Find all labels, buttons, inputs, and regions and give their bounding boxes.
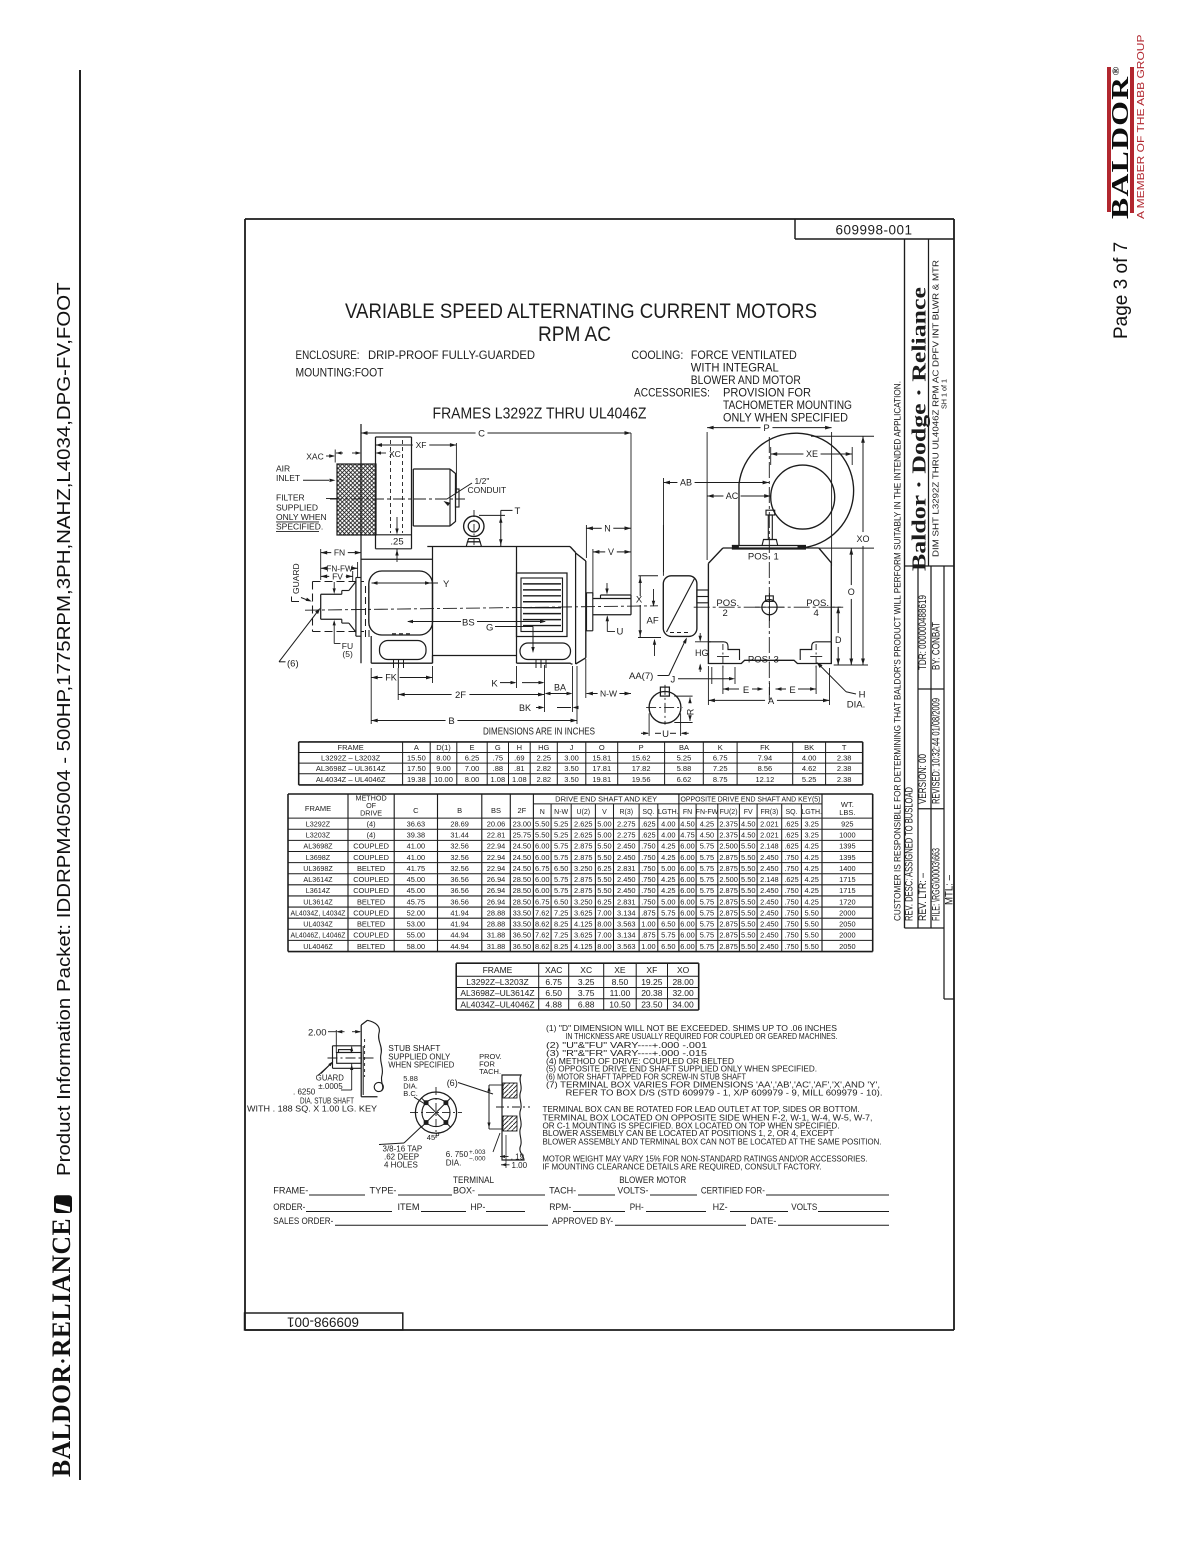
svg-text:2050: 2050 bbox=[839, 920, 855, 929]
svg-text:REV. DESC: ASSIGNED TO BUSLOA: REV. DESC: ASSIGNED TO BUSLOAD bbox=[904, 787, 916, 921]
svg-text:1000: 1000 bbox=[839, 831, 855, 840]
svg-text:2.875: 2.875 bbox=[719, 853, 738, 862]
svg-text:5.50: 5.50 bbox=[741, 875, 755, 884]
svg-text:.750: .750 bbox=[784, 864, 798, 873]
svg-text:J: J bbox=[671, 675, 676, 686]
svg-text:L3698Z: L3698Z bbox=[306, 853, 331, 862]
svg-text:1715: 1715 bbox=[839, 886, 855, 895]
svg-text:6.00: 6.00 bbox=[535, 875, 549, 884]
svg-text:28.50: 28.50 bbox=[513, 886, 532, 895]
svg-text:FORCE VENTILATED: FORCE VENTILATED bbox=[691, 350, 797, 362]
svg-text:POS.: POS. bbox=[748, 654, 771, 665]
svg-text:COUPLED: COUPLED bbox=[353, 908, 389, 917]
svg-text:8.56: 8.56 bbox=[758, 764, 773, 773]
svg-text:VARIABLE SPEED ALTERNATING CUR: VARIABLE SPEED ALTERNATING CURRENT MOTOR… bbox=[345, 300, 817, 323]
svg-text:5.50: 5.50 bbox=[741, 942, 755, 951]
svg-text:.750: .750 bbox=[641, 853, 655, 862]
svg-text:19.38: 19.38 bbox=[407, 775, 426, 784]
svg-text:3.563: 3.563 bbox=[617, 942, 636, 951]
svg-text:.750: .750 bbox=[784, 931, 798, 940]
svg-text:6.50: 6.50 bbox=[661, 920, 675, 929]
svg-text:28.50: 28.50 bbox=[513, 875, 532, 884]
svg-text:31.88: 31.88 bbox=[487, 942, 506, 951]
svg-text:6.50: 6.50 bbox=[554, 897, 568, 906]
svg-text:4.25: 4.25 bbox=[805, 864, 819, 873]
svg-text:1: 1 bbox=[774, 552, 779, 563]
svg-text:4.00: 4.00 bbox=[661, 819, 675, 828]
svg-text:DRIVE: DRIVE bbox=[360, 809, 382, 818]
svg-text:.750: .750 bbox=[784, 908, 798, 917]
svg-text:5.75: 5.75 bbox=[700, 886, 714, 895]
svg-text:.750: .750 bbox=[641, 886, 655, 895]
svg-text:5.50: 5.50 bbox=[597, 853, 611, 862]
svg-text:2.450: 2.450 bbox=[760, 853, 779, 862]
svg-text:L3292Z: L3292Z bbox=[306, 819, 331, 828]
svg-text:4.25: 4.25 bbox=[805, 897, 819, 906]
svg-text:ENCLOSURE:: ENCLOSURE: bbox=[296, 350, 360, 362]
svg-text:COOLING:: COOLING: bbox=[631, 350, 683, 362]
svg-text:2.82: 2.82 bbox=[536, 764, 551, 773]
svg-text:8.00: 8.00 bbox=[465, 775, 480, 784]
svg-text:.750: .750 bbox=[641, 875, 655, 884]
svg-text:31.88: 31.88 bbox=[487, 931, 506, 940]
svg-text:.625: .625 bbox=[784, 842, 798, 851]
svg-text:B: B bbox=[448, 716, 454, 727]
svg-text:E: E bbox=[789, 685, 795, 696]
svg-text:26.94: 26.94 bbox=[487, 886, 506, 895]
svg-text:HP-: HP- bbox=[470, 1202, 485, 1212]
svg-text:.875: .875 bbox=[641, 931, 655, 940]
svg-text:8.50: 8.50 bbox=[612, 977, 629, 987]
svg-text:BK: BK bbox=[519, 703, 531, 713]
svg-text:FRAME-: FRAME- bbox=[273, 1186, 308, 1196]
svg-text:3.625: 3.625 bbox=[574, 931, 593, 940]
svg-text:U: U bbox=[617, 627, 624, 638]
svg-text:3.250: 3.250 bbox=[574, 864, 593, 873]
svg-text:AL4034Z, L4034Z: AL4034Z, L4034Z bbox=[291, 908, 347, 917]
svg-text:31.44: 31.44 bbox=[450, 831, 469, 840]
svg-text:1.08: 1.08 bbox=[491, 775, 506, 784]
svg-text:XF: XF bbox=[646, 965, 657, 975]
svg-text:6.62: 6.62 bbox=[677, 775, 692, 784]
svg-text:(4): (4) bbox=[367, 831, 376, 840]
svg-text:4.50: 4.50 bbox=[680, 819, 694, 828]
svg-text:.750: .750 bbox=[641, 842, 655, 851]
svg-text:1395: 1395 bbox=[839, 842, 855, 851]
svg-text:2.831: 2.831 bbox=[617, 864, 636, 873]
svg-text:REFER TO BOX D/S (STD 609979 -: REFER TO BOX D/S (STD 609979 - 1, X/P 60… bbox=[566, 1088, 883, 1097]
svg-text:1.08: 1.08 bbox=[512, 775, 527, 784]
svg-text:2.625: 2.625 bbox=[574, 831, 593, 840]
svg-text:28.50: 28.50 bbox=[513, 897, 532, 906]
svg-text:SPECIFIED.: SPECIFIED. bbox=[276, 522, 323, 532]
svg-text:SQ.: SQ. bbox=[642, 809, 654, 816]
svg-text:4.50: 4.50 bbox=[700, 831, 714, 840]
svg-text:6.25: 6.25 bbox=[597, 864, 611, 873]
svg-text:2: 2 bbox=[723, 608, 728, 619]
svg-text:55.00: 55.00 bbox=[407, 931, 426, 940]
svg-text:10.00: 10.00 bbox=[434, 775, 453, 784]
svg-text:3.134: 3.134 bbox=[617, 908, 636, 917]
svg-text:COUPLED: COUPLED bbox=[353, 875, 389, 884]
svg-text:WHEN SPECIFIED: WHEN SPECIFIED bbox=[388, 1061, 454, 1070]
svg-text:2.875: 2.875 bbox=[719, 897, 738, 906]
svg-text:.625: .625 bbox=[784, 831, 798, 840]
svg-text:3.134: 3.134 bbox=[617, 931, 636, 940]
svg-text:AB: AB bbox=[680, 478, 692, 488]
svg-text:.750: .750 bbox=[784, 920, 798, 929]
svg-text:609998-001: 609998-001 bbox=[287, 1315, 359, 1330]
svg-text:41.00: 41.00 bbox=[407, 853, 426, 862]
svg-text:25.75: 25.75 bbox=[513, 831, 532, 840]
svg-text:V: V bbox=[602, 809, 607, 816]
svg-text:5.75: 5.75 bbox=[700, 920, 714, 929]
svg-text:33.50: 33.50 bbox=[513, 920, 532, 929]
svg-text:L3203Z: L3203Z bbox=[306, 831, 331, 840]
svg-text:3.75: 3.75 bbox=[578, 988, 595, 998]
svg-text:28.88: 28.88 bbox=[487, 920, 506, 929]
svg-text:4.25: 4.25 bbox=[805, 842, 819, 851]
svg-text:FRAME: FRAME bbox=[338, 743, 364, 752]
svg-text:7.25: 7.25 bbox=[713, 764, 728, 773]
svg-text:2.450: 2.450 bbox=[760, 920, 779, 929]
svg-text:6.25: 6.25 bbox=[597, 897, 611, 906]
svg-text:BS: BS bbox=[491, 806, 501, 815]
svg-text:TACH-: TACH- bbox=[549, 1186, 576, 1196]
svg-text:FN: FN bbox=[334, 548, 345, 558]
svg-text:1715: 1715 bbox=[839, 875, 855, 884]
svg-text:2.625: 2.625 bbox=[574, 819, 593, 828]
svg-text:U: U bbox=[662, 729, 669, 740]
svg-text:1.00: 1.00 bbox=[512, 1161, 528, 1170]
svg-text:5.50: 5.50 bbox=[741, 842, 755, 851]
svg-text:FV: FV bbox=[332, 571, 343, 581]
svg-text:4.50: 4.50 bbox=[741, 819, 755, 828]
svg-text:2.875: 2.875 bbox=[719, 942, 738, 951]
svg-text:4.00: 4.00 bbox=[661, 831, 675, 840]
svg-text:32.56: 32.56 bbox=[450, 853, 469, 862]
svg-text:22.81: 22.81 bbox=[487, 831, 506, 840]
svg-text:36.56: 36.56 bbox=[450, 886, 469, 895]
svg-text:BLOWER ASSEMBLY AND TERMINAL B: BLOWER ASSEMBLY AND TERMINAL BOX CAN NOT… bbox=[543, 1137, 882, 1146]
svg-text:−.000: −.000 bbox=[469, 1156, 486, 1163]
svg-text:XAC: XAC bbox=[545, 965, 562, 975]
svg-text:.69: .69 bbox=[514, 754, 524, 763]
svg-text:2.875: 2.875 bbox=[574, 886, 593, 895]
svg-text:17.81: 17.81 bbox=[592, 764, 611, 773]
svg-text:L3614Z: L3614Z bbox=[306, 886, 331, 895]
svg-text:6.50: 6.50 bbox=[661, 942, 675, 951]
svg-text:BLOWER AND MOTOR: BLOWER AND MOTOR bbox=[691, 375, 801, 387]
svg-text:AL3698Z – UL3614Z: AL3698Z – UL3614Z bbox=[316, 764, 386, 773]
svg-text:5.75: 5.75 bbox=[554, 853, 568, 862]
svg-text:AL3614Z: AL3614Z bbox=[303, 875, 333, 884]
svg-text:BS: BS bbox=[462, 618, 475, 629]
svg-text:XAC: XAC bbox=[306, 452, 323, 462]
svg-text:58.00: 58.00 bbox=[407, 942, 426, 951]
svg-text:BELTED: BELTED bbox=[357, 864, 385, 873]
svg-text:15.62: 15.62 bbox=[632, 754, 651, 763]
svg-text:8.00: 8.00 bbox=[597, 942, 611, 951]
svg-text:5.75: 5.75 bbox=[700, 864, 714, 873]
svg-text:2.275: 2.275 bbox=[617, 819, 636, 828]
svg-text:PROVISION FOR: PROVISION FOR bbox=[723, 388, 811, 400]
svg-text:8.00: 8.00 bbox=[597, 920, 611, 929]
svg-text:11.00: 11.00 bbox=[610, 988, 631, 998]
svg-text:5.00: 5.00 bbox=[661, 897, 675, 906]
svg-text:6.00: 6.00 bbox=[680, 886, 694, 895]
svg-text:MOUNTING:FOOT: MOUNTING:FOOT bbox=[296, 368, 384, 380]
svg-text:.88: .88 bbox=[493, 764, 503, 773]
svg-text:XE: XE bbox=[806, 449, 818, 459]
svg-text:OPPOSITE DRIVE END SHAFT AND K: OPPOSITE DRIVE END SHAFT AND KEY(5) bbox=[680, 795, 820, 804]
svg-text:12.12: 12.12 bbox=[756, 775, 775, 784]
svg-text:.750: .750 bbox=[784, 897, 798, 906]
svg-text:5.50: 5.50 bbox=[741, 853, 755, 862]
svg-text:7.00: 7.00 bbox=[597, 931, 611, 940]
svg-text:22.94: 22.94 bbox=[487, 853, 506, 862]
svg-text:FRAME: FRAME bbox=[305, 804, 331, 813]
svg-text:(6): (6) bbox=[447, 1078, 458, 1088]
svg-text:2.875: 2.875 bbox=[719, 931, 738, 940]
svg-text:7.25: 7.25 bbox=[554, 931, 568, 940]
svg-text:5.75: 5.75 bbox=[661, 908, 675, 917]
svg-text:36.50: 36.50 bbox=[513, 931, 532, 940]
svg-text:24.50: 24.50 bbox=[513, 842, 532, 851]
svg-text:H: H bbox=[517, 743, 522, 752]
svg-text:SH 1 of 1: SH 1 of 1 bbox=[940, 379, 949, 409]
svg-text:SUPPLIED: SUPPLIED bbox=[276, 503, 318, 513]
svg-text:K: K bbox=[718, 743, 723, 752]
svg-text:26.94: 26.94 bbox=[487, 875, 506, 884]
svg-text:4: 4 bbox=[814, 608, 819, 619]
svg-text:DATE-: DATE- bbox=[750, 1216, 776, 1226]
svg-text:6.00: 6.00 bbox=[680, 853, 694, 862]
svg-text:D(1): D(1) bbox=[436, 743, 451, 752]
svg-text:4.00: 4.00 bbox=[802, 754, 817, 763]
svg-text:6.00: 6.00 bbox=[535, 886, 549, 895]
svg-text:2000: 2000 bbox=[839, 931, 855, 940]
svg-text:CERTIFIED FOR-: CERTIFIED FOR- bbox=[701, 1186, 765, 1196]
svg-text:41.75: 41.75 bbox=[407, 864, 426, 873]
svg-text:2F: 2F bbox=[517, 806, 526, 815]
svg-text:ORDER-: ORDER- bbox=[273, 1202, 305, 1212]
svg-text:53.00: 53.00 bbox=[407, 920, 426, 929]
svg-text:26.94: 26.94 bbox=[487, 897, 506, 906]
svg-text:5.75: 5.75 bbox=[700, 908, 714, 917]
svg-text:L3292Z – L3203Z: L3292Z – L3203Z bbox=[321, 754, 381, 763]
svg-text:FV: FV bbox=[744, 809, 753, 816]
svg-text:LGTH.: LGTH. bbox=[801, 809, 822, 816]
svg-text:AL3698Z–UL3614Z: AL3698Z–UL3614Z bbox=[460, 988, 534, 998]
svg-text:2.148: 2.148 bbox=[760, 875, 779, 884]
svg-text:19.25: 19.25 bbox=[641, 977, 663, 987]
svg-text:20.38: 20.38 bbox=[641, 988, 663, 998]
svg-text:36.56: 36.56 bbox=[450, 875, 469, 884]
svg-text:5.75: 5.75 bbox=[700, 875, 714, 884]
svg-text:E: E bbox=[743, 685, 749, 696]
svg-text:4.125: 4.125 bbox=[574, 942, 593, 951]
svg-text:C: C bbox=[478, 428, 485, 439]
svg-text:8.62: 8.62 bbox=[535, 920, 549, 929]
svg-text:4.25: 4.25 bbox=[805, 886, 819, 895]
svg-text:Baldor · Dodge · Reliance: Baldor · Dodge · Reliance bbox=[909, 287, 931, 571]
svg-text:8.25: 8.25 bbox=[554, 942, 568, 951]
svg-text:BLOWER MOTOR: BLOWER MOTOR bbox=[619, 1175, 686, 1185]
svg-text:CONDUIT: CONDUIT bbox=[468, 485, 507, 495]
svg-text:2.875: 2.875 bbox=[574, 875, 593, 884]
svg-text:39.38: 39.38 bbox=[407, 831, 426, 840]
svg-text:2.25: 2.25 bbox=[536, 754, 551, 763]
svg-text:5.00: 5.00 bbox=[661, 864, 675, 873]
svg-text:6.00: 6.00 bbox=[680, 920, 694, 929]
svg-text:2.500: 2.500 bbox=[719, 842, 738, 851]
svg-text:1720: 1720 bbox=[839, 897, 855, 906]
svg-text:N: N bbox=[604, 524, 611, 534]
svg-text:1400: 1400 bbox=[839, 864, 855, 873]
svg-text:2.875: 2.875 bbox=[719, 864, 738, 873]
svg-text:5.75: 5.75 bbox=[700, 842, 714, 851]
svg-text:BY: CONBAT: BY: CONBAT bbox=[931, 622, 943, 670]
svg-text:3.00: 3.00 bbox=[564, 754, 579, 763]
svg-text:FR(3): FR(3) bbox=[760, 809, 778, 816]
svg-text:28.88: 28.88 bbox=[487, 908, 506, 917]
svg-text:17.50: 17.50 bbox=[407, 764, 426, 773]
svg-text:.81: .81 bbox=[514, 764, 524, 773]
svg-text:L3292Z–L3203Z: L3292Z–L3203Z bbox=[466, 977, 528, 987]
svg-text:AL4046Z, L4046Z: AL4046Z, L4046Z bbox=[291, 931, 347, 940]
svg-text:5.25: 5.25 bbox=[802, 775, 817, 784]
svg-text:32.56: 32.56 bbox=[450, 864, 469, 873]
svg-text:DIMENSIONS ARE IN INCHES: DIMENSIONS ARE IN INCHES bbox=[483, 726, 595, 738]
svg-text:19.56: 19.56 bbox=[632, 775, 651, 784]
svg-text:4.62: 4.62 bbox=[802, 764, 817, 773]
svg-text:DRIVE END SHAFT AND KEY: DRIVE END SHAFT AND KEY bbox=[555, 795, 657, 804]
svg-text:2.450: 2.450 bbox=[760, 864, 779, 873]
svg-text:2.875: 2.875 bbox=[574, 853, 593, 862]
svg-text:B: B bbox=[457, 806, 462, 815]
svg-text:4.125: 4.125 bbox=[574, 920, 593, 929]
svg-text:1395: 1395 bbox=[839, 853, 855, 862]
svg-text:U(2): U(2) bbox=[576, 809, 590, 816]
svg-text:K: K bbox=[491, 679, 498, 690]
svg-text:T: T bbox=[842, 743, 847, 752]
svg-text:36.50: 36.50 bbox=[513, 942, 532, 951]
svg-text:UL4046Z: UL4046Z bbox=[303, 942, 333, 951]
svg-text:15.81: 15.81 bbox=[592, 754, 611, 763]
svg-text:FRAMES L3292Z THRU UL4046Z: FRAMES L3292Z THRU UL4046Z bbox=[433, 406, 647, 423]
svg-text:6.00: 6.00 bbox=[535, 842, 549, 851]
svg-text:22.94: 22.94 bbox=[487, 864, 506, 873]
svg-text:DIA.: DIA. bbox=[847, 700, 865, 711]
svg-text:5.50: 5.50 bbox=[741, 920, 755, 929]
svg-text:XE: XE bbox=[614, 965, 626, 975]
svg-text:10.50: 10.50 bbox=[609, 999, 631, 1009]
svg-text:ACCESSORIES:: ACCESSORIES: bbox=[634, 388, 710, 400]
svg-text:7.25: 7.25 bbox=[554, 908, 568, 917]
svg-text:5.00: 5.00 bbox=[597, 819, 611, 828]
svg-text:5.75: 5.75 bbox=[700, 897, 714, 906]
svg-text:±.0005: ±.0005 bbox=[318, 1082, 343, 1091]
svg-text:TACHOMETER MOUNTING: TACHOMETER MOUNTING bbox=[723, 400, 852, 412]
svg-text:FILTER: FILTER bbox=[276, 493, 305, 503]
svg-text:XO: XO bbox=[856, 534, 869, 544]
svg-text:GUARD: GUARD bbox=[291, 563, 301, 594]
svg-text:9.00: 9.00 bbox=[436, 764, 451, 773]
svg-text:3.25: 3.25 bbox=[805, 819, 819, 828]
svg-text:6.00: 6.00 bbox=[535, 853, 549, 862]
svg-text:2.021: 2.021 bbox=[760, 819, 779, 828]
svg-text:TDR: 000000488619: TDR: 000000488619 bbox=[917, 595, 929, 670]
svg-text:3.50: 3.50 bbox=[564, 775, 579, 784]
svg-text:19.81: 19.81 bbox=[592, 775, 611, 784]
svg-text:2.450: 2.450 bbox=[760, 897, 779, 906]
svg-text:2000: 2000 bbox=[839, 908, 855, 917]
svg-text:8.62: 8.62 bbox=[535, 942, 549, 951]
svg-text:4.25: 4.25 bbox=[805, 853, 819, 862]
svg-text:AIR: AIR bbox=[276, 464, 290, 474]
svg-text:.625: .625 bbox=[784, 819, 798, 828]
svg-text:. 6250: . 6250 bbox=[293, 1088, 316, 1097]
svg-text:VOLTS-: VOLTS- bbox=[617, 1186, 648, 1196]
svg-text:5.75: 5.75 bbox=[554, 886, 568, 895]
svg-text:HZ-: HZ- bbox=[713, 1202, 728, 1212]
svg-text:O: O bbox=[599, 743, 605, 752]
svg-text:.625: .625 bbox=[641, 831, 655, 840]
svg-text:TYPE-: TYPE- bbox=[370, 1186, 397, 1196]
svg-text:REVISED: 10:32:44 01/08/2009: REVISED: 10:32:44 01/08/2009 bbox=[931, 698, 943, 804]
svg-text:2050: 2050 bbox=[839, 942, 855, 951]
svg-text:XC: XC bbox=[580, 965, 592, 975]
svg-text:5.50: 5.50 bbox=[535, 831, 549, 840]
svg-text:5.50: 5.50 bbox=[535, 819, 549, 828]
svg-text:17.82: 17.82 bbox=[632, 764, 651, 773]
svg-text:6.75: 6.75 bbox=[713, 754, 728, 763]
svg-text:2.38: 2.38 bbox=[837, 775, 852, 784]
svg-text:8.00: 8.00 bbox=[436, 754, 451, 763]
svg-text:IF MOUNTING CLEARANCE DETAILS: IF MOUNTING CLEARANCE DETAILS ARE REQUIR… bbox=[543, 1163, 822, 1172]
svg-text:FRAME: FRAME bbox=[483, 965, 513, 975]
svg-text:FN: FN bbox=[683, 809, 692, 816]
svg-text:SQ.: SQ. bbox=[786, 809, 798, 816]
svg-text:UL3698Z: UL3698Z bbox=[303, 864, 333, 873]
svg-text:609998-001: 609998-001 bbox=[835, 223, 912, 238]
svg-text:5.50: 5.50 bbox=[741, 931, 755, 940]
svg-text:36.56: 36.56 bbox=[450, 897, 469, 906]
svg-text:ITEM: ITEM bbox=[398, 1202, 420, 1212]
svg-text:5.50: 5.50 bbox=[741, 864, 755, 873]
svg-text:(6): (6) bbox=[287, 659, 299, 670]
svg-text:28.69: 28.69 bbox=[450, 819, 469, 828]
svg-text:2.450: 2.450 bbox=[760, 908, 779, 917]
svg-text:A: A bbox=[414, 743, 419, 752]
svg-text:CUSTOMER IS RESPONSIBLE FOR DE: CUSTOMER IS RESPONSIBLE FOR DETERMINING … bbox=[893, 381, 903, 921]
svg-text:4.25: 4.25 bbox=[661, 842, 675, 851]
svg-text:C: C bbox=[413, 806, 419, 815]
svg-text:6.50: 6.50 bbox=[545, 988, 562, 998]
svg-text:MTL: –: MTL: – bbox=[944, 874, 956, 905]
svg-text:V: V bbox=[608, 547, 614, 557]
svg-text:3.25: 3.25 bbox=[805, 831, 819, 840]
svg-text:8.75: 8.75 bbox=[713, 775, 728, 784]
svg-text:36.63: 36.63 bbox=[407, 819, 426, 828]
svg-text:5.50: 5.50 bbox=[805, 931, 819, 940]
svg-text:BELTED: BELTED bbox=[357, 920, 385, 929]
svg-text:22.94: 22.94 bbox=[487, 842, 506, 851]
svg-text:P: P bbox=[639, 743, 644, 752]
svg-text:UL4034Z: UL4034Z bbox=[303, 920, 333, 929]
svg-text:2.450: 2.450 bbox=[617, 853, 636, 862]
